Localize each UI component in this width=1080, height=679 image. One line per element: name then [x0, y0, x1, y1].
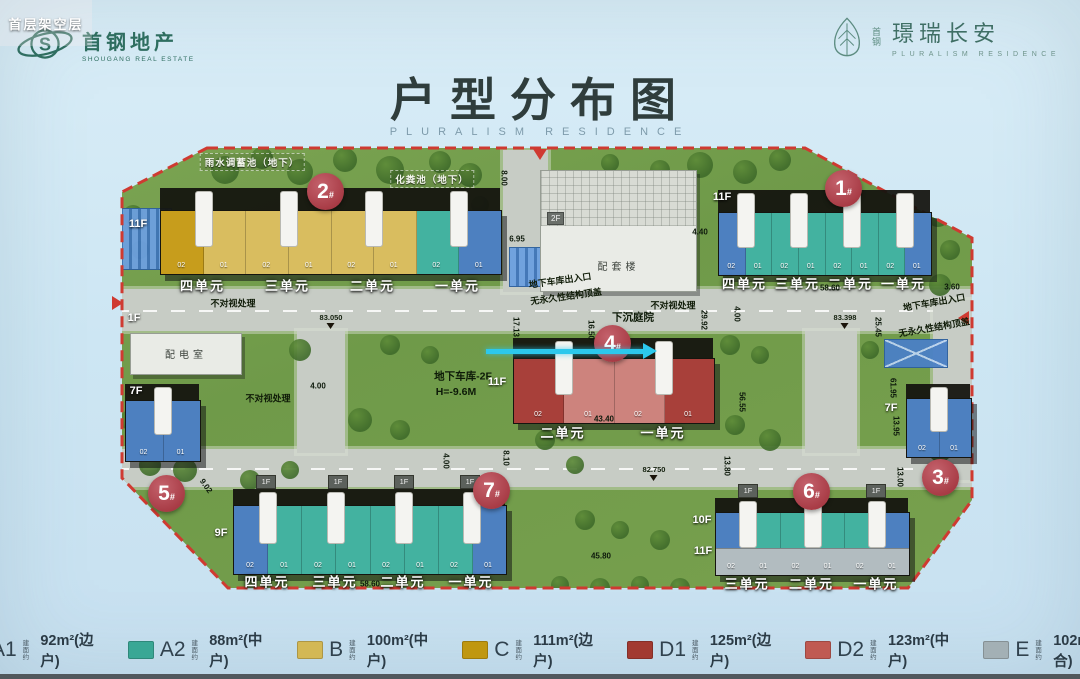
section-label: 四单元 [722, 274, 767, 293]
map-label: 不对视处理 [210, 297, 255, 310]
unit-number-label: 01 [416, 562, 424, 569]
legend-area-prefix: 建面约 [23, 640, 35, 661]
elevator-core [280, 191, 298, 247]
legend-area-prefix: 建面约 [349, 640, 361, 661]
legend-size: 92m²(边户) [40, 629, 100, 671]
unit-number-label: 01 [177, 449, 185, 456]
elevator-core [737, 193, 755, 248]
entrance-marker [112, 296, 123, 310]
unit-number-label: 02 [833, 263, 841, 270]
floor-count-label: 7F [130, 385, 143, 397]
dimension-label: 43.40 [594, 415, 614, 424]
map-label: 不对视处理 [650, 299, 695, 312]
elevator-core [154, 387, 172, 435]
map-label: 地下车库-2F [434, 369, 492, 384]
dimension-label: 6.95 [509, 235, 525, 244]
building-5-badge: 5# [148, 475, 185, 512]
elevator-core [327, 492, 345, 544]
elevator-core [868, 501, 886, 548]
legend-item: E建面约102m²(顶合) [983, 629, 1080, 671]
elevation-marker: 82.750 [643, 465, 666, 481]
map-label: 下沉庭院 [612, 310, 654, 325]
section-label: 一单元 [640, 423, 685, 442]
legend-item: A1建面约92m²(边户) [0, 629, 101, 671]
unit-number-label: 01 [348, 562, 356, 569]
section-label: 四单元 [180, 276, 225, 295]
unit-number-label: 01 [684, 411, 692, 418]
legend-area-prefix: 建面约 [192, 640, 204, 661]
photo-edge [0, 674, 1080, 679]
building-1-badge: 1# [825, 170, 862, 207]
map-label: H=-9.6M [436, 386, 477, 398]
unit-number-label: 02 [432, 262, 440, 269]
legend-size: 125m²(边户) [710, 629, 778, 671]
dimension-label: 58.60 [820, 284, 840, 293]
elevator-core [259, 492, 277, 544]
legend-area-prefix: 建面约 [1035, 640, 1047, 661]
unit-number-label: 01 [759, 563, 767, 570]
unit-number-label: 02 [382, 562, 390, 569]
unit-number-label: 01 [475, 262, 483, 269]
legend-swatch-E [983, 641, 1009, 659]
dimension-label: 4.00 [442, 453, 451, 469]
floor-count-label: 11F [713, 191, 731, 203]
unit-cell-E [716, 548, 909, 575]
legend-swatch-D2 [805, 641, 831, 659]
unit-number-label: 02 [246, 562, 254, 569]
legend-item: D1建面约125m²(边户) [627, 629, 778, 671]
dimension-label: 13.80 [723, 456, 732, 476]
legend-code: E [1015, 638, 1029, 662]
section-label: 三单元 [775, 274, 820, 293]
dimension-label: 3.60 [944, 283, 960, 292]
dimension-label: 9.02 [198, 477, 214, 495]
floor-count-label: 9F [215, 527, 228, 539]
legend-code: D1 [659, 638, 686, 662]
dimension-label: 4.40 [692, 228, 708, 237]
section-label: 一单元 [881, 274, 926, 293]
unit-number-label: 01 [888, 563, 896, 570]
unit-number-label: 02 [634, 411, 642, 418]
entrance-marker [533, 149, 547, 160]
floor-count-label: 7F [885, 402, 898, 414]
elevator-core [896, 193, 914, 248]
map-label: 雨水调蓄池（地下） [200, 153, 305, 171]
floor-tag-1f: 1F [738, 484, 758, 498]
unit-number-label: 01 [913, 263, 921, 270]
legend-item: D2建面约123m²(中户) [805, 629, 956, 671]
unit-number-label: 02 [727, 563, 735, 570]
unit-number-label: 02 [262, 262, 270, 269]
floor-tag-1f: 1F [866, 484, 886, 498]
floor-tag-1f: 1F [394, 475, 414, 489]
unit-number-label: 02 [886, 263, 894, 270]
dimension-label: 13.00 [896, 467, 905, 487]
legend-bar: A1建面约92m²(边户)A2建面约88m²(中户)B建面约100m²(中户)C… [0, 629, 1080, 671]
building-7-badge: 7# [473, 472, 510, 509]
highlight-arrow [486, 349, 644, 354]
section-label: 二单元 [350, 276, 395, 295]
legend-item: B建面约100m²(中户) [297, 629, 435, 671]
legend-code: B [329, 638, 343, 662]
section-label: 四单元 [244, 572, 289, 591]
unit-number-label: 01 [220, 262, 228, 269]
section-label: 二单元 [380, 572, 425, 591]
unit-number-label: 01 [950, 445, 958, 452]
elevator-core [930, 387, 948, 432]
dimension-label: 58.60 [360, 580, 380, 589]
legend-size: 102m²(顶合) [1053, 629, 1080, 671]
unit-number-label: 02 [727, 263, 735, 270]
legend-item: C建面约111m²(边户) [462, 629, 600, 671]
unit-number-label: 01 [860, 263, 868, 270]
map-label: 1F [128, 312, 141, 324]
legend-swatch-D1 [627, 641, 653, 659]
dimension-label: 17.13 [512, 317, 521, 337]
unit-number-label: 01 [754, 263, 762, 270]
section-label: 三单元 [265, 276, 310, 295]
elevation-marker: 83.050 [320, 313, 343, 329]
unit-number-label: 01 [305, 262, 313, 269]
legend-swatch-C [462, 641, 488, 659]
dimension-label: 13.95 [892, 416, 901, 436]
elevator-core [450, 191, 468, 247]
section-label: 一单元 [853, 574, 898, 593]
map-label: 地下车库出入口 [902, 290, 966, 314]
page-title: 户型分布图 [0, 64, 1080, 130]
legend-area-prefix: 建面约 [515, 640, 527, 661]
dimension-label: 4.00 [310, 382, 326, 391]
unit-number-label: 02 [314, 562, 322, 569]
legend-swatch-A2 [128, 641, 154, 659]
legend-area-prefix: 建面约 [870, 640, 882, 661]
map-label: 不对视处理 [245, 392, 290, 405]
dimension-label: 61.95 [889, 378, 898, 398]
section-label: 一单元 [448, 572, 493, 591]
legend-item: A2建面约88m²(中户) [128, 629, 270, 671]
unit-number-label: 02 [856, 563, 864, 570]
slide: S 首钢地产 SHOUGANG REAL ESTATE 首钢 璟瑞长安 PLUR… [0, 0, 1080, 679]
elevator-core [195, 191, 213, 247]
unit-number-label: 02 [918, 445, 926, 452]
floor-tag-1f: 1F [328, 475, 348, 489]
legend-code: D2 [837, 638, 864, 662]
legend-code: A2 [160, 638, 186, 662]
section-label: 三单元 [725, 574, 770, 593]
dimension-label: 45.80 [591, 552, 611, 561]
unit-number-label: 01 [584, 411, 592, 418]
unit-number-label: 01 [280, 562, 288, 569]
dimension-label: 56.55 [738, 392, 747, 412]
unit-number-label: 02 [534, 411, 542, 418]
dimension-label: 25.45 [874, 317, 883, 337]
floor-count-label: 11F [694, 545, 712, 557]
legend-area-prefix: 建面约 [692, 640, 704, 661]
building-6-badge: 6# [793, 473, 830, 510]
floor-count-label: 10F [693, 514, 712, 526]
legend-size: 111m²(边户) [533, 629, 599, 671]
legend-size: 88m²(中户) [209, 629, 269, 671]
section-label: 二单元 [540, 423, 585, 442]
legend-size: 123m²(中户) [888, 629, 956, 671]
floor-count-label: 11F [129, 218, 147, 230]
unit-number-label: 01 [390, 262, 398, 269]
elevator-core [365, 191, 383, 247]
building-3-badge: 3# [922, 459, 959, 496]
unit-number-label: 01 [807, 263, 815, 270]
unit-number-label: 02 [450, 562, 458, 569]
elevator-core [790, 193, 808, 248]
legend-code: A1 [0, 638, 17, 662]
unit-number-label: 02 [177, 262, 185, 269]
legend-size: 100m²(中户) [367, 629, 435, 671]
map-label: 化粪池（地下） [390, 170, 474, 188]
page-subtitle: PLURALISM RESIDENCE [0, 126, 1080, 138]
unit-number-label: 02 [780, 263, 788, 270]
elevator-core [739, 501, 757, 548]
stilt-floor-overlay: 首层架空层 [0, 0, 92, 46]
elevation-marker: 83.398 [834, 313, 857, 329]
building-2-badge: 2# [307, 173, 344, 210]
unit-number-label: 02 [140, 449, 148, 456]
unit-number-label: 02 [347, 262, 355, 269]
legend-code: C [494, 638, 509, 662]
dimension-label: 4.00 [733, 306, 742, 322]
unit-number-label: 01 [484, 562, 492, 569]
dimension-label: 29.92 [700, 310, 709, 330]
unit-number-label: 02 [792, 563, 800, 570]
elevator-core [395, 492, 413, 544]
map-label: 无永久性结构顶盖 [897, 314, 970, 339]
section-label: 一单元 [435, 276, 480, 295]
elevator-core [655, 341, 673, 395]
section-label: 二单元 [789, 574, 834, 593]
floor-tag-1f: 1F [256, 475, 276, 489]
dimension-label: 8.10 [502, 450, 511, 466]
legend-swatch-B [297, 641, 323, 659]
unit-number-label: 01 [824, 563, 832, 570]
section-label: 三单元 [312, 572, 357, 591]
dimension-label: 8.00 [500, 170, 509, 186]
building-4-badge: 4# [594, 325, 631, 362]
